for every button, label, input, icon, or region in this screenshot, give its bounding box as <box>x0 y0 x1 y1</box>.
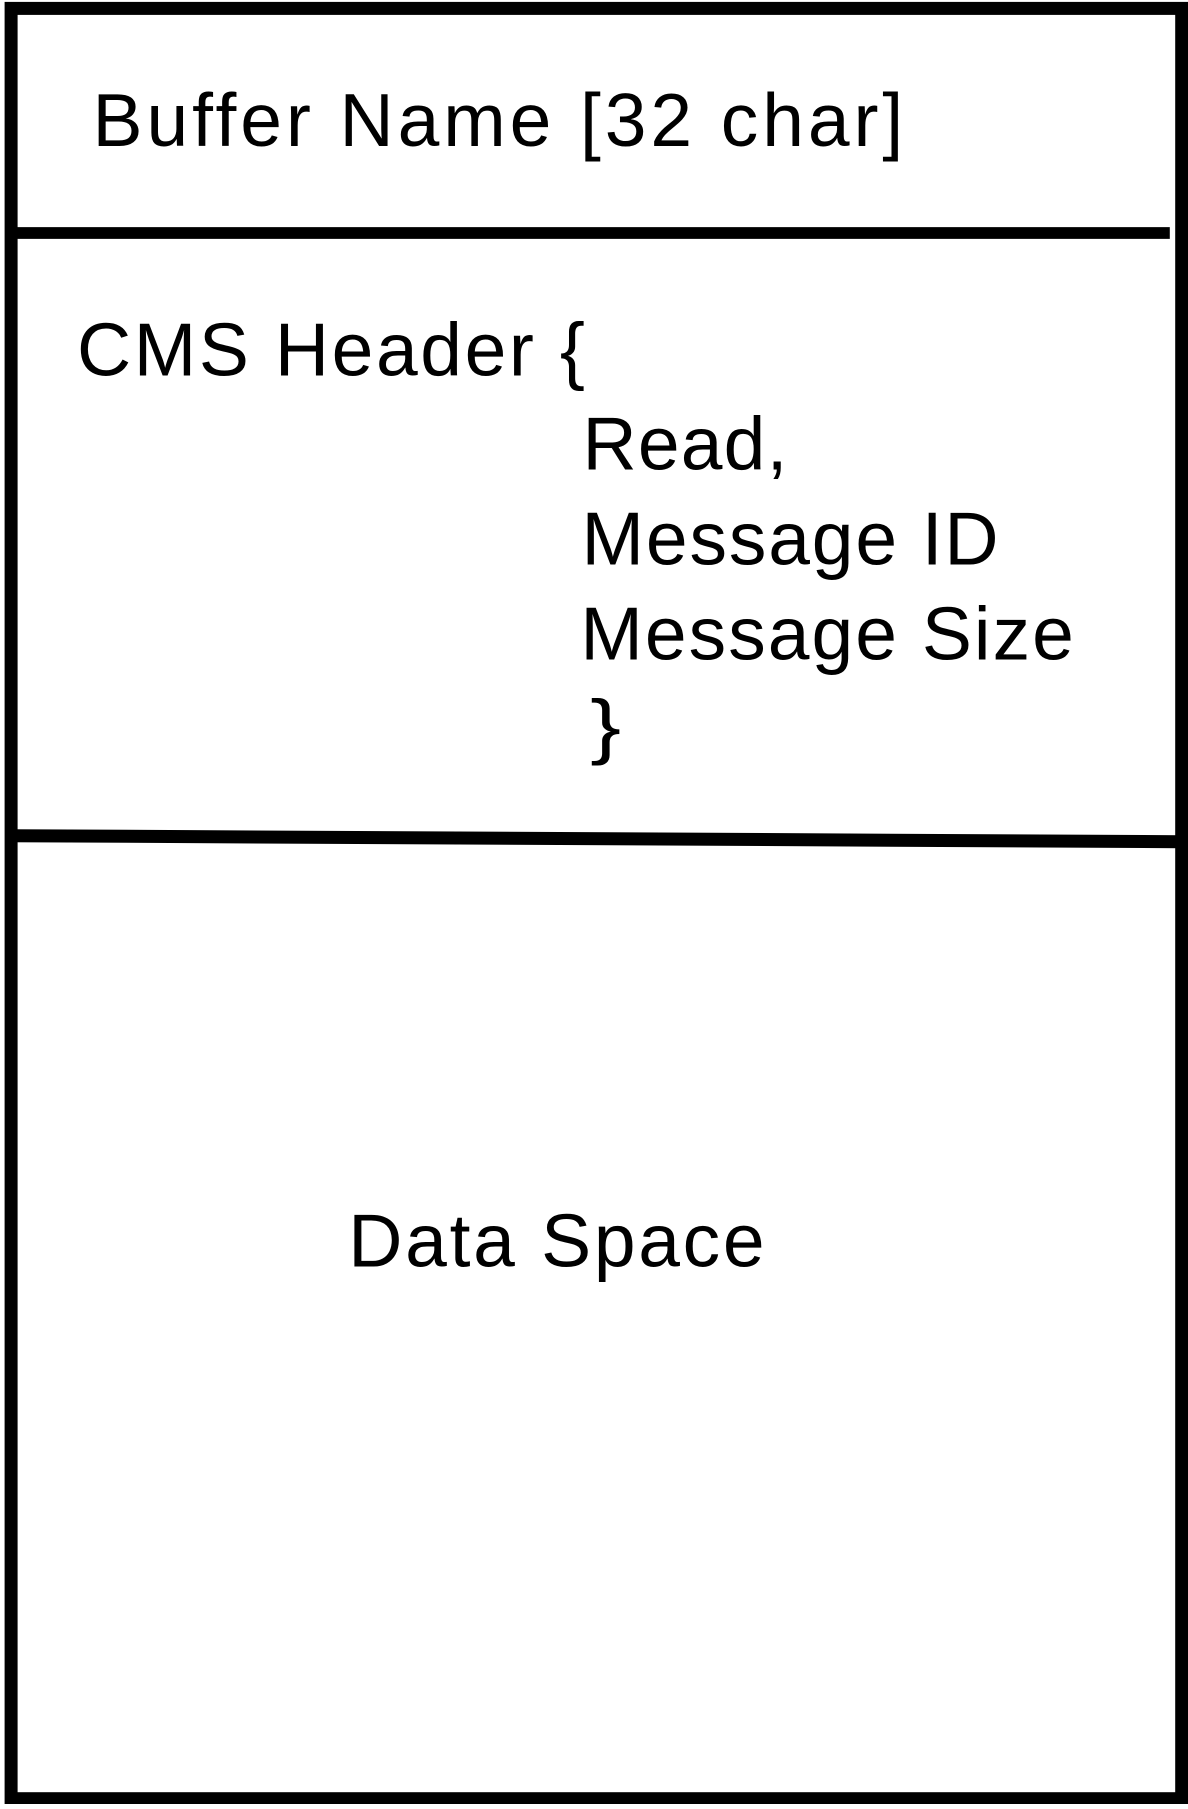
svg-text:Message Size: Message Size <box>580 592 1076 676</box>
svg-text:}: } <box>590 685 621 766</box>
svg-text:Buffer Name [32 char]: Buffer Name [32 char] <box>93 78 908 162</box>
svg-text:Message ID: Message ID <box>582 497 1001 581</box>
svg-text:Data Space: Data Space <box>348 1199 767 1283</box>
svg-text:CMS Header {: CMS Header { <box>77 308 588 392</box>
svg-text:Read,: Read, <box>583 402 789 486</box>
